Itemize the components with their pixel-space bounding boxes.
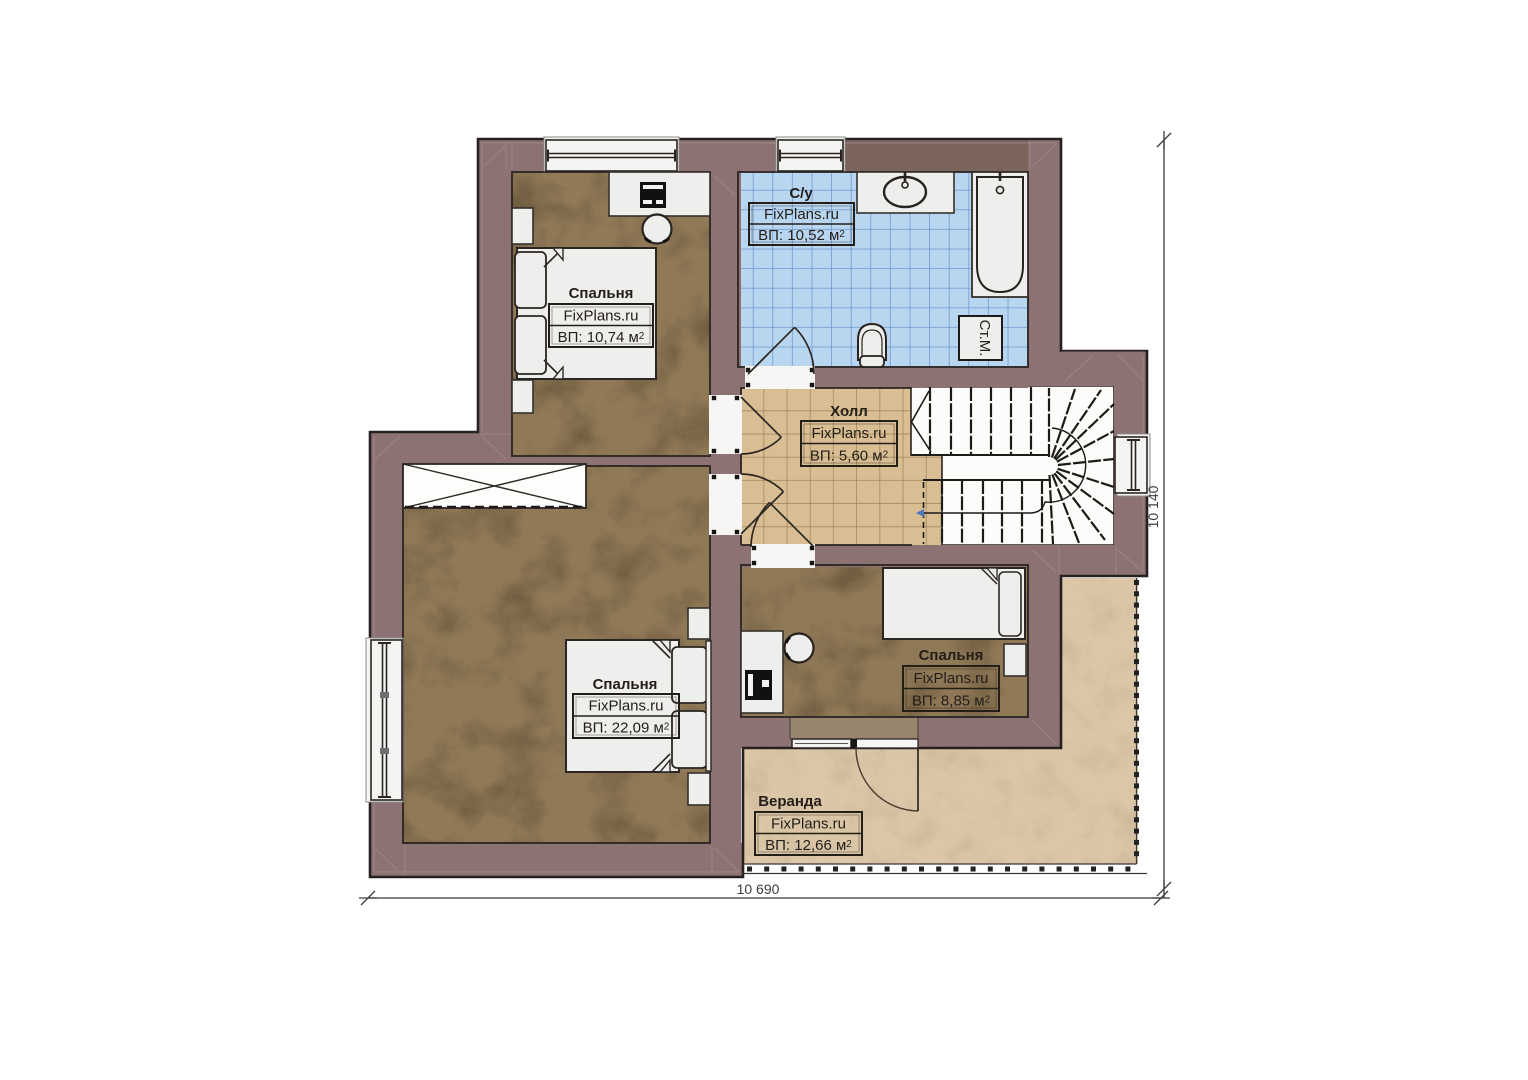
- svg-text:Холл: Холл: [830, 403, 868, 420]
- svg-text:С/у: С/у: [789, 185, 813, 202]
- svg-text:FixPlans.ru: FixPlans.ru: [811, 425, 886, 442]
- svg-text:ВП: 10,74 м2: ВП: 10,74 м2: [558, 329, 645, 346]
- svg-text:ВП: 22,09 м2: ВП: 22,09 м2: [583, 720, 670, 737]
- svg-text:FixPlans.ru: FixPlans.ru: [764, 206, 839, 223]
- svg-text:10 690: 10 690: [737, 881, 780, 897]
- svg-text:ВП: 10,52 м2: ВП: 10,52 м2: [758, 227, 845, 244]
- svg-text:10 140: 10 140: [1145, 485, 1161, 528]
- svg-text:FixPlans.ru: FixPlans.ru: [913, 670, 988, 687]
- svg-text:ВП: 12,66 м2: ВП: 12,66 м2: [765, 837, 852, 854]
- svg-text:FixPlans.ru: FixPlans.ru: [563, 307, 638, 324]
- svg-text:FixPlans.ru: FixPlans.ru: [771, 815, 846, 832]
- svg-text:Спальня: Спальня: [593, 676, 658, 693]
- svg-text:FixPlans.ru: FixPlans.ru: [588, 698, 663, 715]
- svg-text:Спальня: Спальня: [919, 647, 984, 664]
- svg-text:ВП: 5,60 м2: ВП: 5,60 м2: [810, 447, 889, 464]
- svg-text:Веранда: Веранда: [758, 793, 822, 810]
- svg-text:Ст.М.: Ст.М.: [976, 320, 993, 357]
- svg-text:ВП: 8,85 м2: ВП: 8,85 м2: [912, 692, 991, 709]
- svg-text:Спальня: Спальня: [569, 285, 634, 302]
